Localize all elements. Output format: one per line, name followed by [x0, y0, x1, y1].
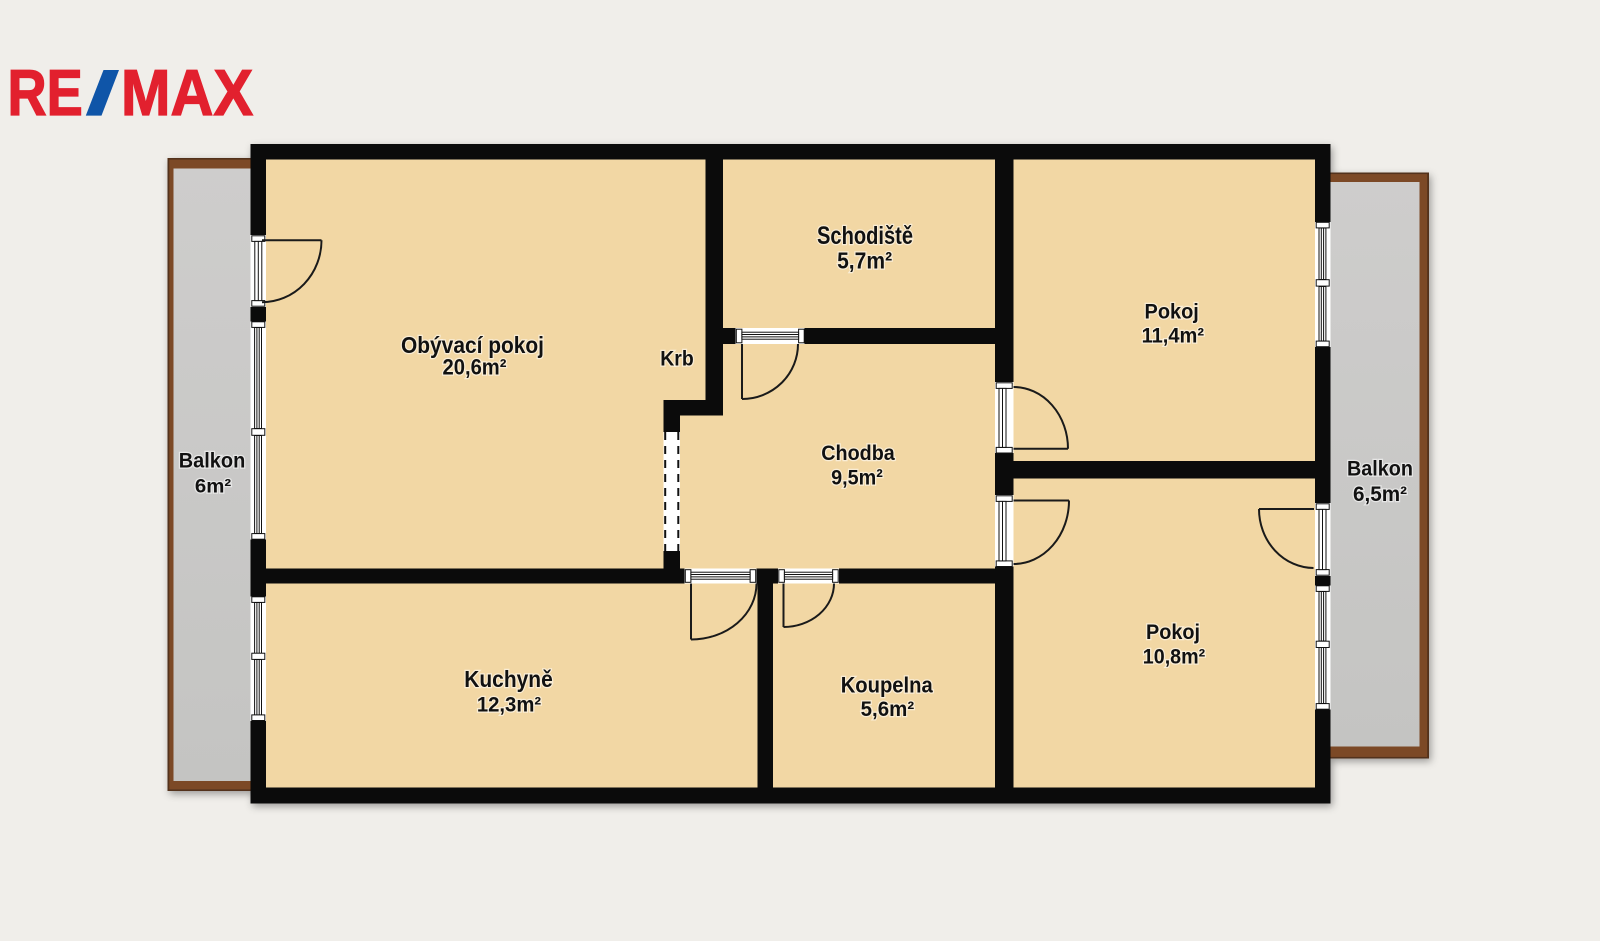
svg-text:6m²: 6m² — [195, 475, 232, 497]
svg-text:9,5m²: 9,5m² — [831, 466, 883, 490]
svg-text:Balkon: Balkon — [179, 450, 246, 473]
svg-text:12,3m²: 12,3m² — [477, 694, 541, 717]
svg-text:5,7m²: 5,7m² — [837, 248, 892, 274]
svg-text:Krb: Krb — [660, 347, 694, 371]
svg-text:Pokoj: Pokoj — [1145, 300, 1199, 323]
svg-text:Balkon: Balkon — [1347, 458, 1413, 481]
svg-text:5,6m²: 5,6m² — [861, 698, 915, 721]
svg-text:Chodba: Chodba — [821, 442, 895, 465]
svg-text:Kuchyně: Kuchyně — [464, 666, 553, 692]
svg-text:Koupelna: Koupelna — [841, 673, 934, 698]
svg-text:11,4m²: 11,4m² — [1142, 325, 1204, 348]
svg-text:Schodiště: Schodiště — [817, 222, 913, 250]
svg-text:Pokoj: Pokoj — [1146, 621, 1200, 644]
svg-text:RE: RE — [8, 57, 83, 129]
svg-text:MAX: MAX — [121, 57, 253, 129]
svg-text:6,5m²: 6,5m² — [1353, 483, 1407, 506]
svg-text:20,6m²: 20,6m² — [443, 355, 507, 380]
svg-text:10,8m²: 10,8m² — [1143, 646, 1205, 669]
